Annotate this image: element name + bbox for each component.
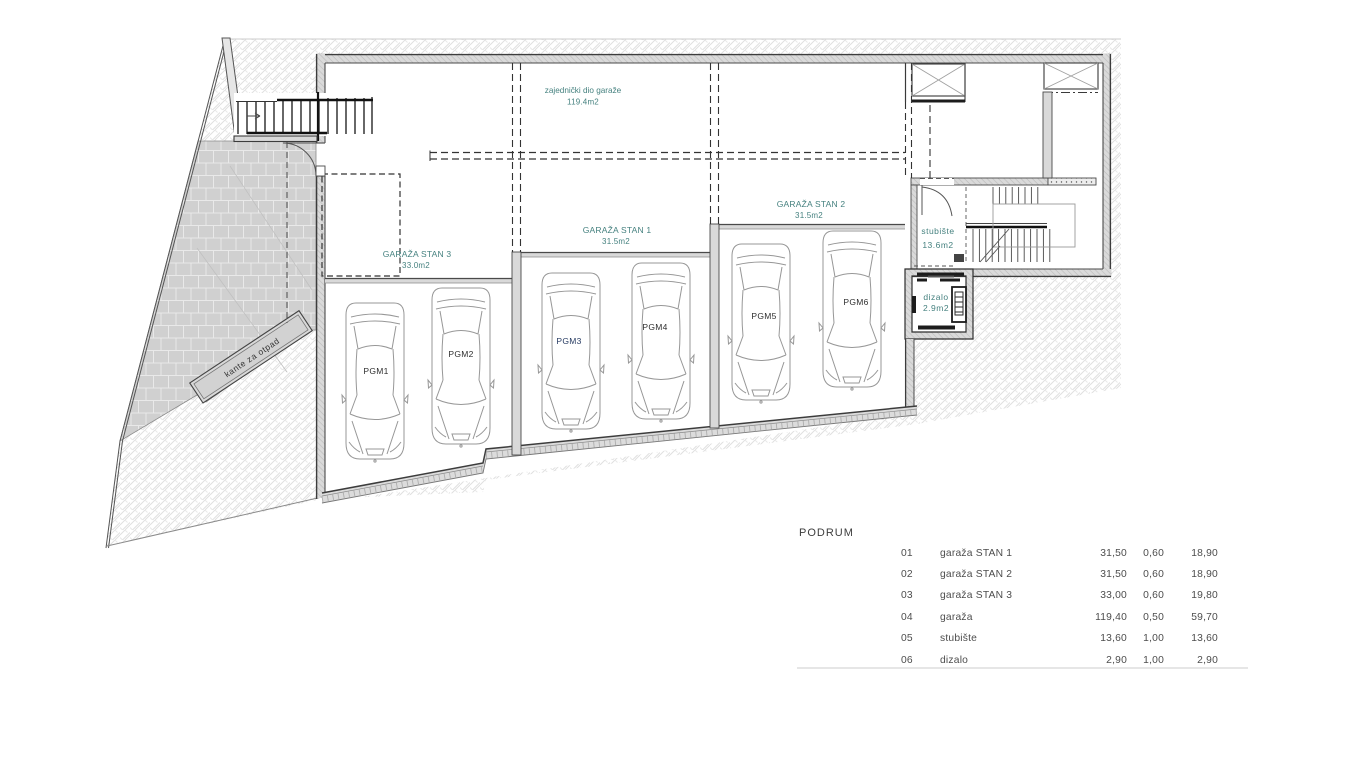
svg-text:GARAŽA STAN 1: GARAŽA STAN 1: [583, 225, 652, 235]
svg-text:01: 01: [901, 548, 913, 559]
svg-text:PGM6: PGM6: [843, 297, 868, 307]
svg-text:PGM4: PGM4: [642, 322, 667, 332]
svg-text:18,90: 18,90: [1191, 569, 1218, 580]
svg-text:06: 06: [901, 655, 913, 666]
svg-text:2.9m2: 2.9m2: [923, 303, 949, 313]
svg-text:GARAŽA STAN 2: GARAŽA STAN 2: [777, 199, 846, 209]
svg-text:59,70: 59,70: [1191, 612, 1218, 623]
svg-text:dizalo: dizalo: [923, 292, 948, 302]
svg-text:2,90: 2,90: [1106, 655, 1127, 666]
svg-text:PGM5: PGM5: [751, 311, 776, 321]
svg-text:31,50: 31,50: [1100, 548, 1127, 559]
svg-text:zajednički dio garaže: zajednički dio garaže: [545, 86, 622, 95]
svg-text:13.6m2: 13.6m2: [922, 240, 953, 250]
svg-text:03: 03: [901, 590, 913, 601]
svg-text:02: 02: [901, 569, 913, 580]
svg-text:PGM1: PGM1: [363, 366, 388, 376]
svg-text:05: 05: [901, 633, 913, 644]
svg-text:31.5m2: 31.5m2: [795, 211, 823, 220]
svg-text:2,90: 2,90: [1197, 655, 1218, 666]
svg-text:stubište: stubište: [940, 633, 977, 644]
svg-text:19,80: 19,80: [1191, 590, 1218, 601]
svg-text:0,50: 0,50: [1143, 612, 1164, 623]
svg-text:33.0m2: 33.0m2: [402, 261, 430, 270]
svg-text:119.4m2: 119.4m2: [567, 98, 599, 107]
svg-text:1,00: 1,00: [1143, 655, 1164, 666]
svg-text:31.5m2: 31.5m2: [602, 237, 630, 246]
svg-text:garaža: garaža: [940, 612, 973, 623]
svg-text:garaža STAN 3: garaža STAN 3: [940, 590, 1012, 601]
svg-text:04: 04: [901, 612, 913, 623]
svg-text:garaža STAN 2: garaža STAN 2: [940, 569, 1012, 580]
svg-text:GARAŽA STAN 3: GARAŽA STAN 3: [383, 249, 452, 259]
svg-text:stubište: stubište: [921, 226, 954, 236]
svg-text:garaža STAN 1: garaža STAN 1: [940, 548, 1012, 559]
svg-text:dizalo: dizalo: [940, 655, 968, 666]
svg-text:33,00: 33,00: [1100, 590, 1127, 601]
svg-text:18,90: 18,90: [1191, 548, 1218, 559]
svg-text:PGM2: PGM2: [448, 349, 473, 359]
svg-text:0,60: 0,60: [1143, 590, 1164, 601]
svg-text:0,60: 0,60: [1143, 548, 1164, 559]
svg-text:13,60: 13,60: [1100, 633, 1127, 644]
svg-text:0,60: 0,60: [1143, 569, 1164, 580]
svg-text:1,00: 1,00: [1143, 633, 1164, 644]
svg-text:PODRUM: PODRUM: [799, 527, 854, 539]
svg-text:13,60: 13,60: [1191, 633, 1218, 644]
svg-text:31,50: 31,50: [1100, 569, 1127, 580]
svg-text:119,40: 119,40: [1095, 612, 1127, 623]
svg-text:PGM3: PGM3: [556, 336, 581, 346]
